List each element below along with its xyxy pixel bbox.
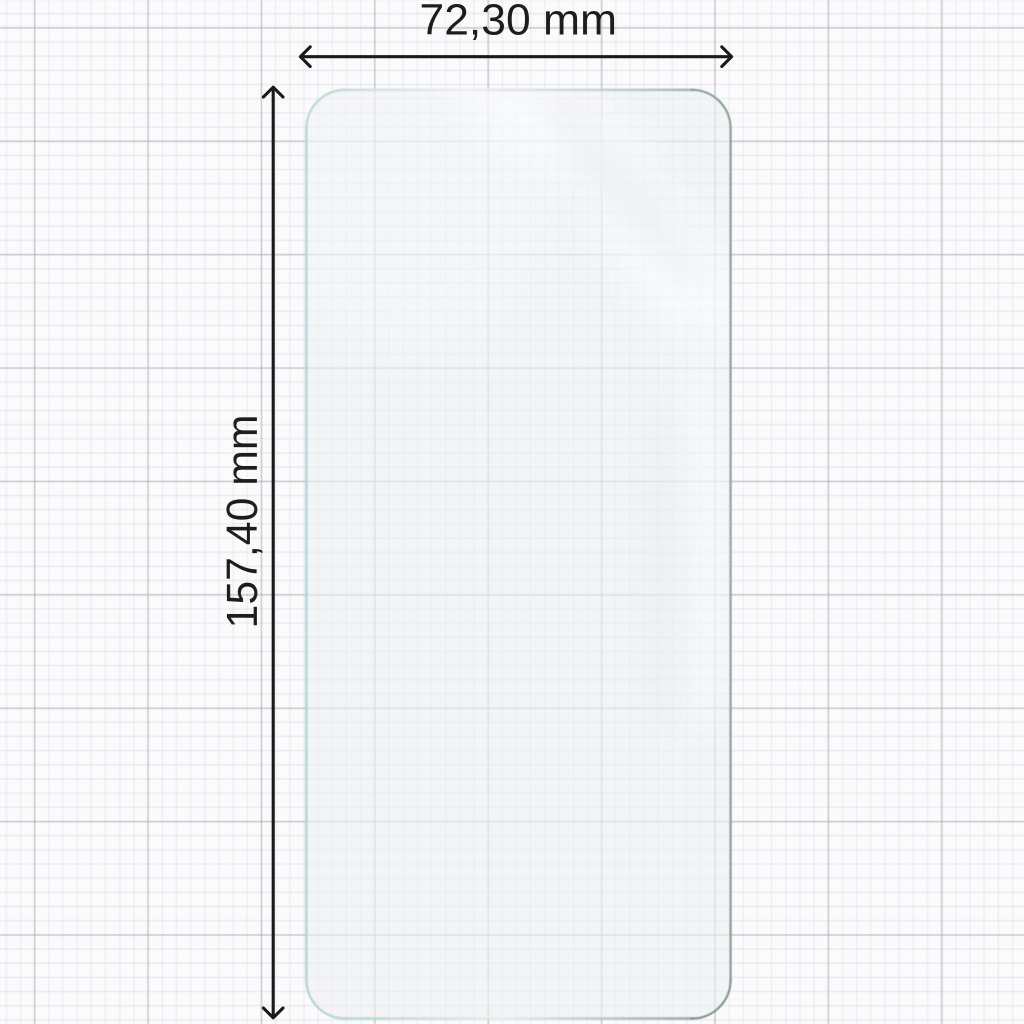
svg-text:157,40 mm: 157,40 mm [219,415,267,629]
svg-text:72,30 mm: 72,30 mm [420,0,618,44]
